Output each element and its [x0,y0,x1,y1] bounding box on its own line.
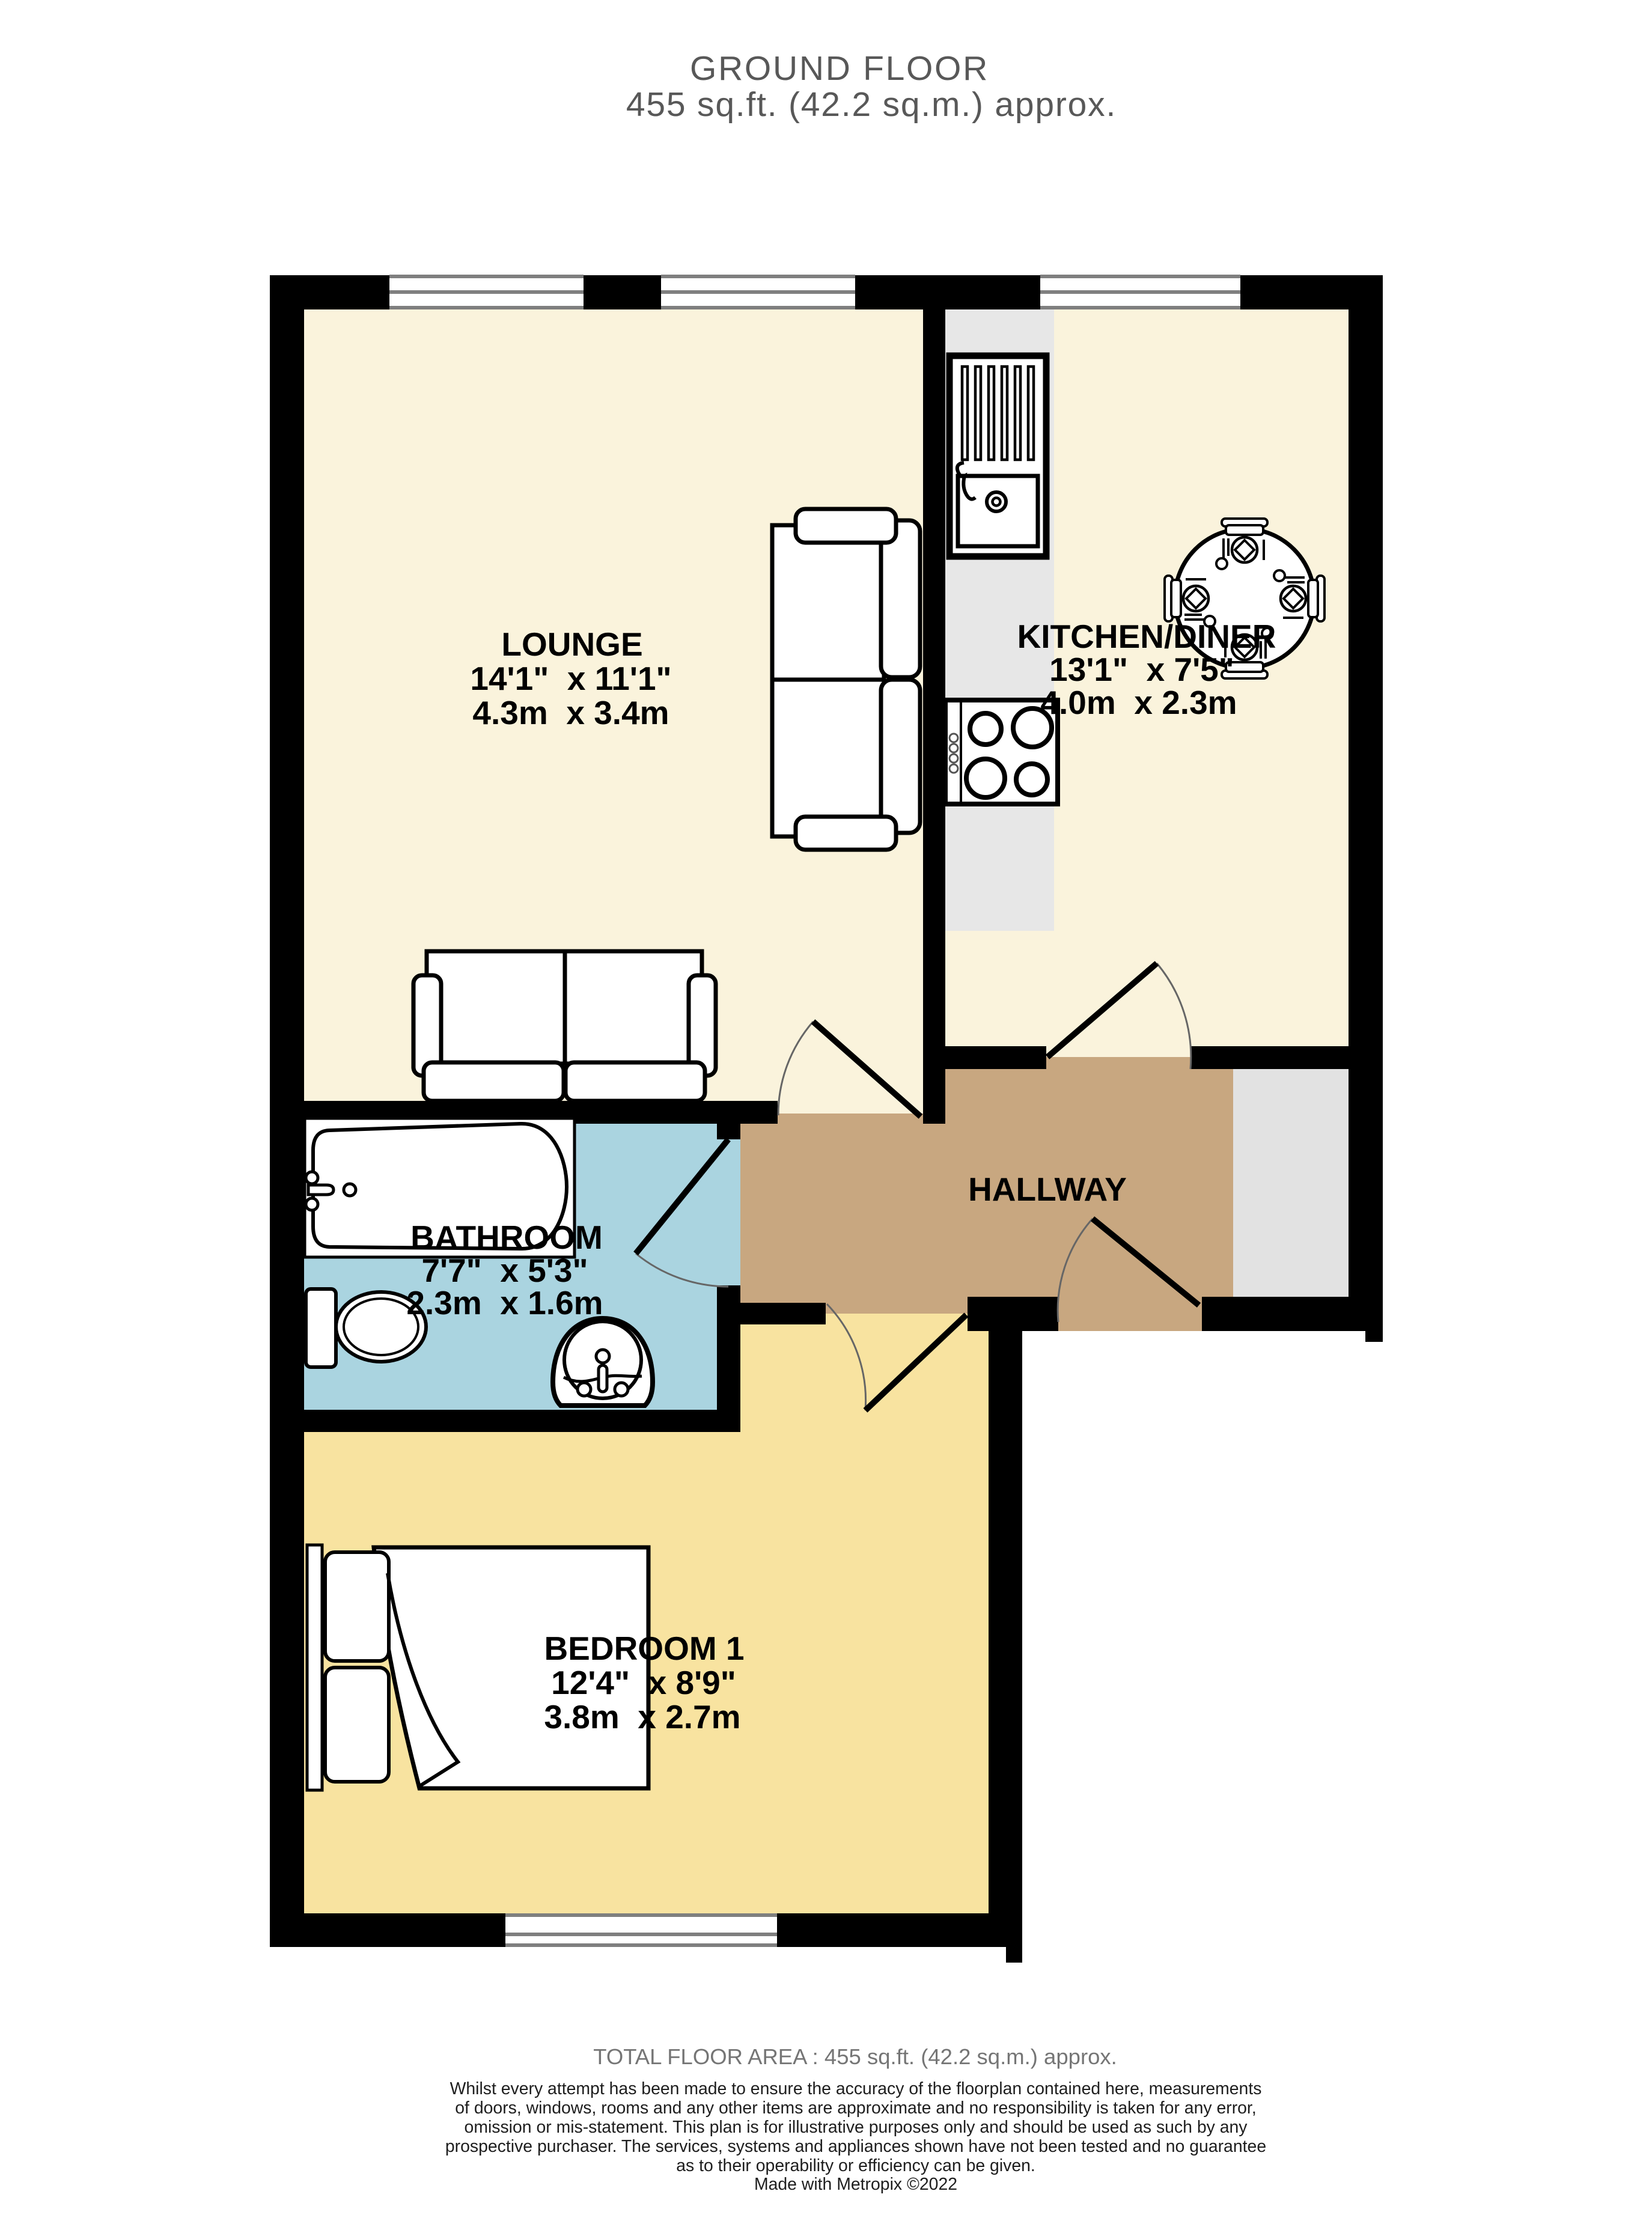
svg-text:BATHROOM: BATHROOM [410,1219,603,1256]
svg-text:KITCHEN/DINER: KITCHEN/DINER [1017,618,1276,655]
svg-text:GROUND FLOOR: GROUND FLOOR [690,49,989,88]
svg-text:12'4" x 8'9": 12'4" x 8'9" [551,1664,736,1701]
svg-text:Made with Metropix ©2022: Made with Metropix ©2022 [754,2175,957,2194]
svg-text:as to their operability or eff: as to their operability or efficiency ca… [676,2156,1035,2175]
svg-text:prospective purchaser. The ser: prospective purchaser. The services, sys… [445,2137,1266,2156]
svg-text:BEDROOM 1: BEDROOM 1 [544,1630,744,1667]
svg-text:7'7" x 5'3": 7'7" x 5'3" [421,1252,588,1289]
svg-text:4.3m x 3.4m: 4.3m x 3.4m [472,694,669,731]
svg-text:2.3m x 1.6m: 2.3m x 1.6m [406,1284,603,1321]
svg-text:of doors, windows, rooms and a: of doors, windows, rooms and any other i… [455,2098,1256,2118]
svg-text:HALLWAY: HALLWAY [968,1171,1127,1208]
svg-text:4.0m x 2.3m: 4.0m x 2.3m [1040,684,1237,721]
svg-text:omission or mis-statement. Thi: omission or mis-statement. This plan is … [465,2118,1248,2137]
svg-text:LOUNGE: LOUNGE [501,626,642,663]
svg-text:14'1" x 11'1": 14'1" x 11'1" [470,660,671,697]
svg-text:13'1" x 7'5": 13'1" x 7'5" [1049,651,1234,688]
svg-text:3.8m x 2.7m: 3.8m x 2.7m [544,1698,740,1735]
svg-text:Whilst every attempt has been: Whilst every attempt has been made to en… [450,2079,1262,2098]
svg-text:455 sq.ft. (42.2 sq.m.) approx: 455 sq.ft. (42.2 sq.m.) approx. [626,85,1117,124]
svg-text:TOTAL FLOOR AREA : 455 sq.ft.: TOTAL FLOOR AREA : 455 sq.ft. (42.2 sq.m… [593,2044,1117,2069]
